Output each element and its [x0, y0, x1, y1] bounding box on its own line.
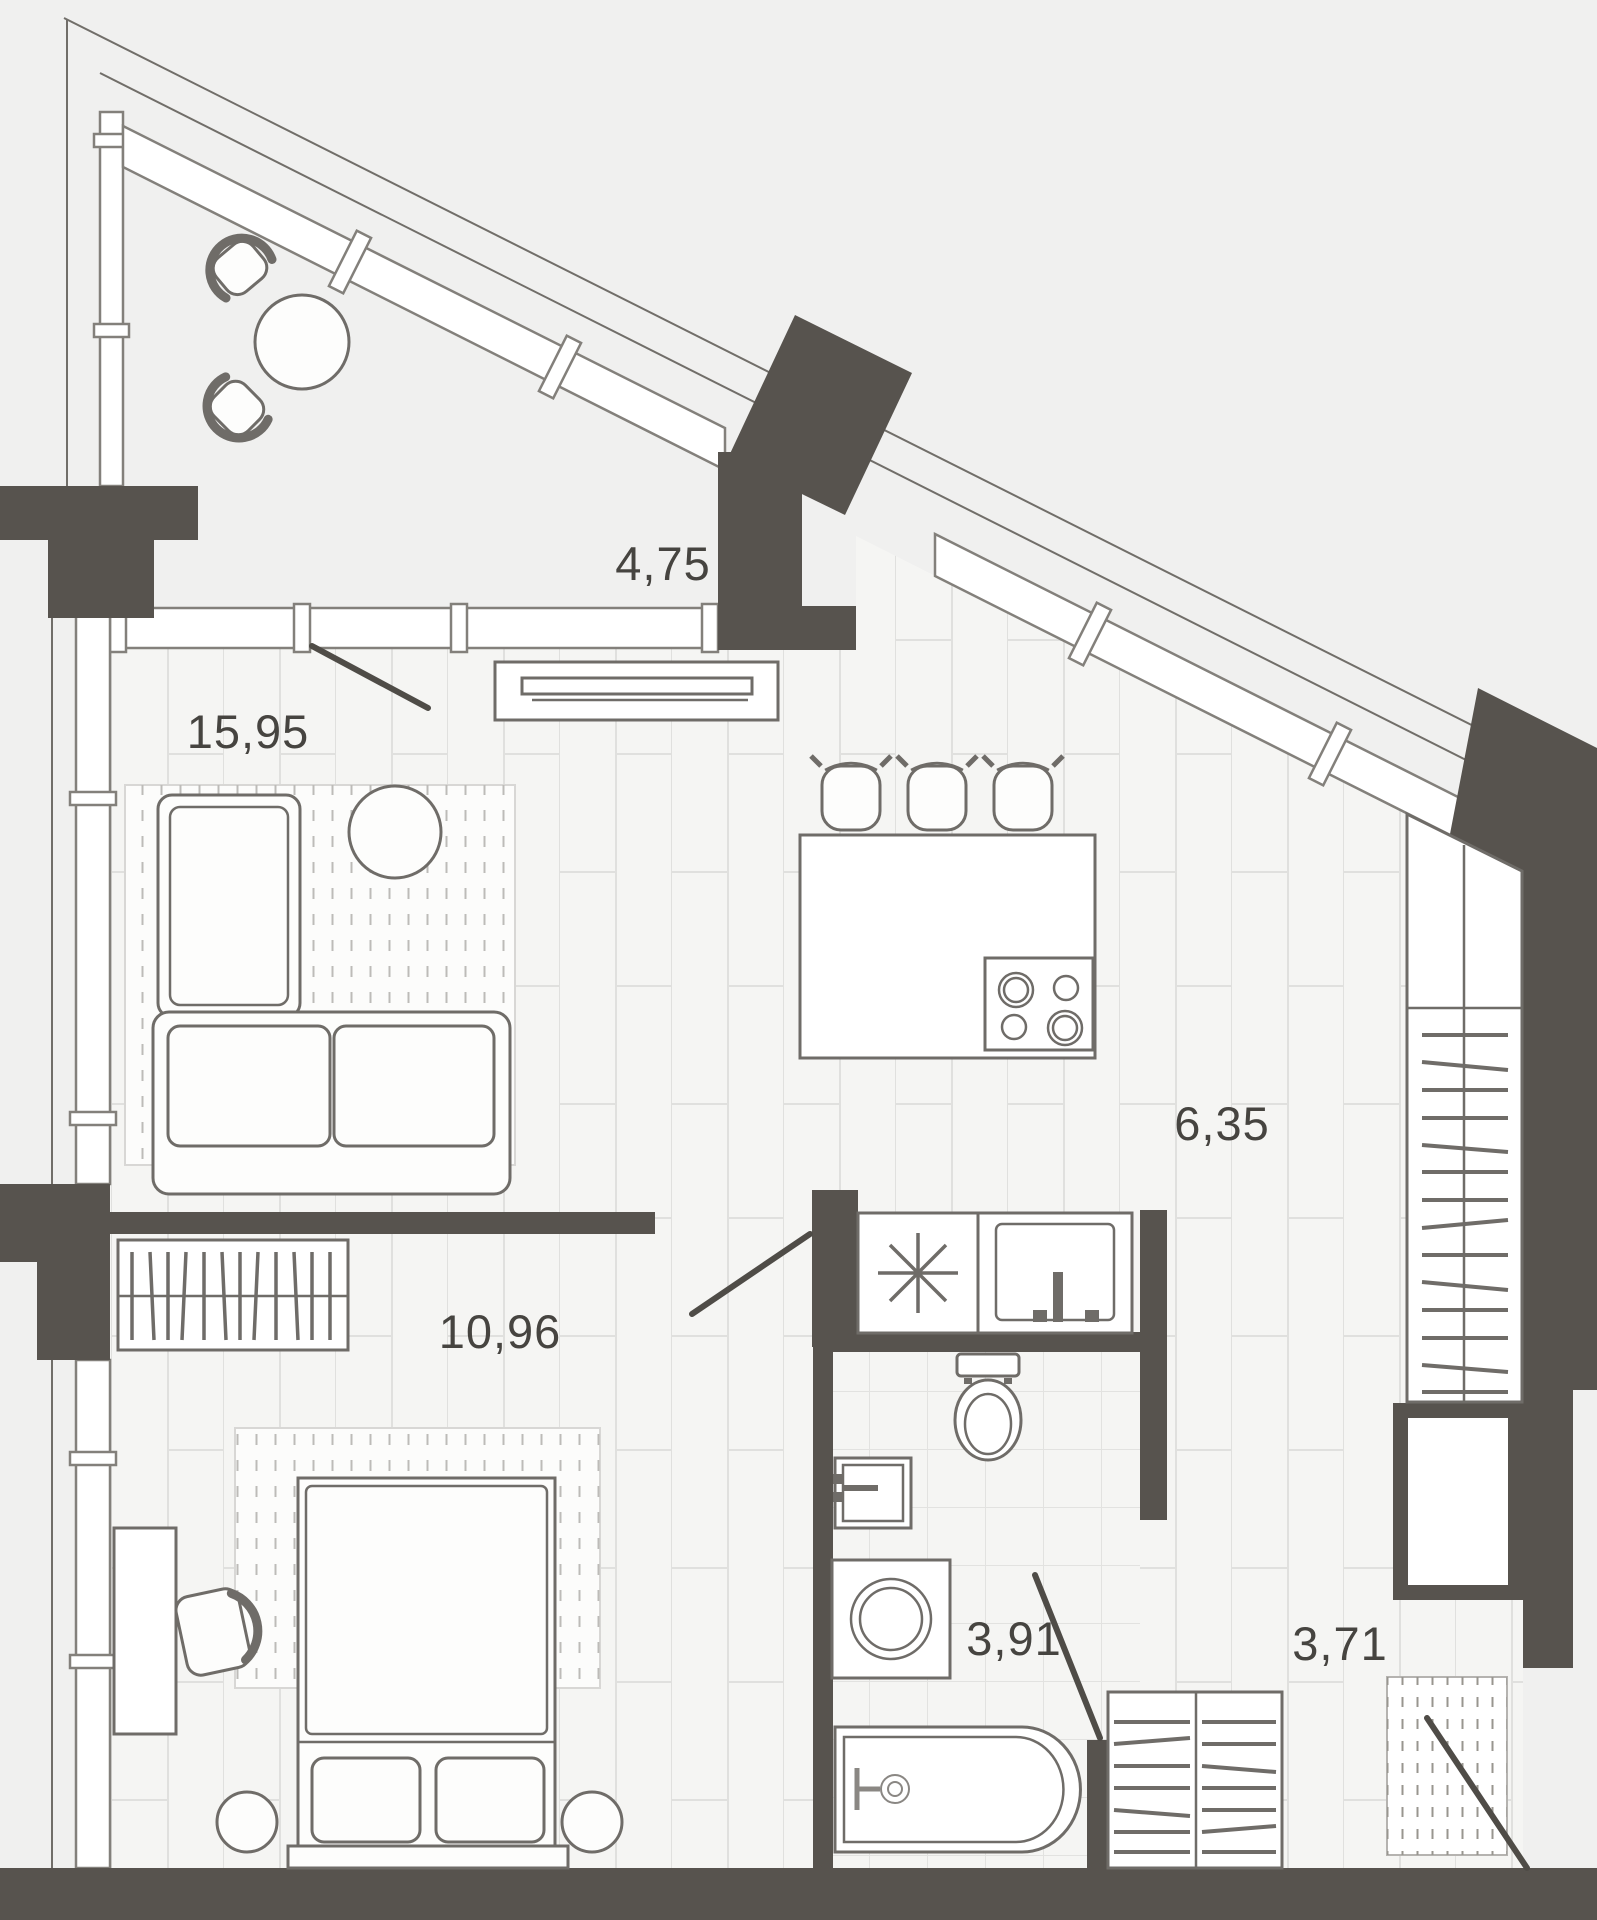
nightstand-icon [562, 1792, 622, 1852]
duct-shaft-icon [1393, 1403, 1523, 1600]
balcony-chair-icon [194, 370, 275, 451]
room-label-balcony: 4,75 [615, 537, 710, 590]
pillow [436, 1758, 544, 1842]
window-icon [110, 608, 718, 648]
fridge-icon [858, 1213, 978, 1333]
window-icon [100, 112, 123, 486]
balcony-table-icon [255, 295, 349, 389]
side-table-icon [349, 786, 441, 878]
kitchen-sink-icon [978, 1213, 1132, 1333]
bathtub-icon [835, 1727, 1080, 1852]
room-label-kitchen: 6,35 [1174, 1097, 1269, 1150]
floor-plan-svg: 4,75 15,95 6,35 10,96 3,91 3,71 [0, 0, 1597, 1920]
bathroom-sink-icon [833, 1458, 911, 1528]
closet-rack-icon [118, 1240, 348, 1350]
room-label-bedroom: 10,96 [439, 1305, 562, 1358]
tv-console-icon [495, 662, 778, 720]
pillow [312, 1758, 420, 1842]
window-icon [76, 614, 110, 1184]
sofa-chaise [158, 795, 300, 1017]
wall-living-bedroom [110, 1212, 655, 1234]
room-label-hallway: 3,71 [1292, 1617, 1387, 1670]
window-icon [76, 1360, 110, 1868]
desk-icon [114, 1528, 176, 1734]
bed-icon [288, 1478, 568, 1868]
washing-machine-icon [832, 1560, 950, 1678]
room-label-living: 15,95 [187, 705, 310, 758]
floor-plan: 4,75 15,95 6,35 10,96 3,91 3,71 [0, 0, 1597, 1920]
room-label-bathroom: 3,91 [966, 1612, 1061, 1665]
shoe-cabinet-icon [1108, 1692, 1282, 1868]
doormat-icon [1387, 1677, 1507, 1855]
cooktop-icon [985, 958, 1093, 1050]
nightstand-icon [217, 1792, 277, 1852]
toilet-icon [955, 1354, 1021, 1460]
hanger-wardrobe-icon [1407, 814, 1522, 1402]
